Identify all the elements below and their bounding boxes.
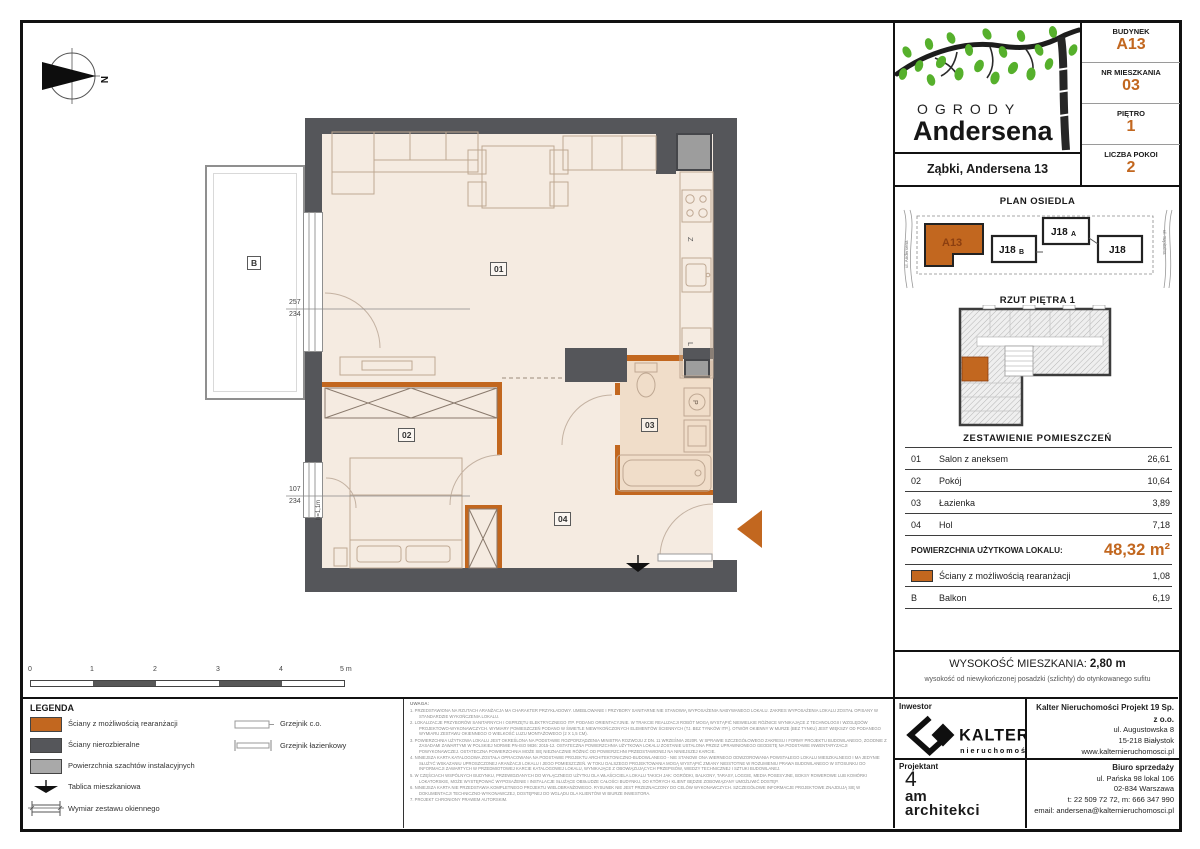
balcony-name: Balkon: [939, 593, 1120, 603]
site-block-a13-label: A13: [942, 237, 962, 249]
sales-address2: 02-834 Warszawa: [1030, 784, 1174, 795]
orange-wall-closet-right: [497, 505, 502, 568]
site-block-j18b-suffix: B: [1019, 249, 1024, 256]
table-row: 02 Pokój 10,64: [905, 470, 1172, 492]
scale-4: 4: [279, 666, 283, 673]
scale-bar-track: [30, 680, 345, 687]
investor-company: Kalter Nieruchomości Projekt 19 Sp. z o.…: [1030, 702, 1174, 725]
height-section-topline: [893, 650, 1182, 652]
wall-row-area: 1,08: [1120, 571, 1172, 581]
height-line: WYSOKOŚĆ MIESZKANIA: 2,80 m: [893, 658, 1182, 670]
orange-wall-bath-top: [627, 355, 683, 361]
apartment-value: 03: [1082, 77, 1180, 95]
kalter-diamond-icon: [932, 724, 955, 747]
rooms-table: 01 Salon z aneksem 26,61 02 Pokój 10,64 …: [905, 447, 1172, 609]
rooms-value: 2: [1082, 159, 1180, 177]
legend-item-label: Wymiar zestawu okiennego: [68, 804, 160, 813]
panel-divider: [893, 22, 895, 828]
orange-wall-closet-left: [465, 505, 469, 568]
legend-box: LEGENDA Ściany z możliwością rearanżacji…: [20, 697, 404, 828]
investor-row-divider: [893, 758, 1182, 760]
legend-item-label: Tablica mieszkaniowa: [68, 782, 141, 791]
total-area-row: POWIERZCHNIA UŻYTKOWA LOKALU: 48,32 m²: [905, 536, 1172, 565]
balcony: [205, 165, 305, 400]
scale-2: 2: [153, 666, 157, 673]
street-left-label: ul. Andersena: [904, 240, 909, 268]
dim-win1-width: 257: [289, 299, 301, 306]
radiator-co-icon: [233, 719, 275, 731]
info-row-apartment: NR MIESZKANIA 03: [1082, 63, 1180, 104]
notes-title: UWAGA:: [410, 701, 888, 706]
total-area-label: POWIERZCHNIA UŻYTKOWA LOKALU:: [905, 546, 1104, 555]
floor-thumb-unit-highlight: [962, 357, 988, 381]
info-row-floor: PIĘTRO 1: [1082, 104, 1180, 145]
site-block-j18a-suffix: A: [1071, 231, 1076, 238]
investor-col-divider: [1025, 699, 1027, 828]
address-bar-underline: [893, 185, 1182, 187]
floor-label: PIĘTRO: [1082, 109, 1180, 118]
orange-wall-bath-left-b: [615, 445, 620, 492]
wall-left-a: [305, 118, 322, 212]
balcony-no: B: [905, 593, 939, 603]
room-no: 01: [905, 454, 939, 464]
room-name: Łazienka: [939, 498, 1120, 508]
window-living: [303, 212, 323, 352]
kalter-logo: KALTER nieruchomości: [901, 712, 1025, 758]
site-plan-map: ul. Andersena ul. Szpitalna A13 J18 B J1…: [895, 208, 1180, 290]
tablica-legend-icon: [32, 780, 60, 794]
investor-label: Inwestor: [899, 702, 932, 711]
table-row: 01 Salon z aneksem 26,61: [905, 448, 1172, 470]
scale-3: 3: [216, 666, 220, 673]
orange-wall-closet-top: [465, 505, 502, 509]
dim-sill-height: h=1,1m: [316, 500, 322, 520]
floor-value: 1: [1082, 118, 1180, 136]
sales-phones: t: 22 509 72 72, m: 666 347 990: [1030, 795, 1174, 806]
info-table-divider: [1080, 22, 1082, 185]
wall-row-name: Ściany z możliwością rearanżacji: [939, 571, 1120, 581]
table-row: 04 Hol 7,18: [905, 514, 1172, 536]
room-no: 02: [905, 476, 939, 486]
room-no: 04: [905, 520, 939, 530]
wall-left-c: [305, 518, 322, 578]
legend-item-label: Grzejnik łazienkowy: [280, 741, 346, 750]
investor-www: www.kalternieruchomosci.pl: [1030, 747, 1174, 758]
orange-wall-bedroom-right: [497, 382, 502, 455]
notes-block: UWAGA: 1. PRZEDSTAWIONA NA RZUTACH ARANŻ…: [410, 701, 888, 804]
kalter-brand-text: KALTER: [959, 727, 1025, 745]
orange-wall-bath-left-a: [615, 383, 620, 395]
note-item: 7. PROJEKT CHRONIONY PRAWEM AUTORSKIM.: [410, 797, 888, 803]
investor-address: Kalter Nieruchomości Projekt 19 Sp. z o.…: [1030, 702, 1174, 758]
balcony-row: B Balkon 6,19: [905, 587, 1172, 609]
apartment-card-page: { "header": { "rows": [ {"label":"BUDYNE…: [0, 0, 1200, 849]
room-name: Hol: [939, 520, 1120, 530]
note-item: 5. W CZĘŚCIACH WSPÓLNYCH BUDYNKU, PRZEWI…: [410, 773, 888, 784]
legend-item-label: Ściany nierozbieralne: [68, 740, 140, 749]
orange-wall-swatch: [911, 570, 933, 582]
room-area: 3,89: [1120, 498, 1172, 508]
brand-logo: OGRODY Andersena: [895, 22, 1080, 152]
site-block-j18a-label: J18: [1051, 227, 1068, 238]
orange-wall-bedroom-top: [322, 382, 502, 387]
wall-shaft2-top: [683, 348, 713, 359]
radiator-bath-icon: [233, 740, 275, 752]
room-label-04: 04: [554, 512, 571, 526]
kalter-brand-sub: nieruchomości: [960, 747, 1025, 755]
investor-address1: ul. Augustowska 8: [1030, 725, 1174, 736]
bathroom-floor: [620, 361, 713, 490]
balcony-inner-line: [213, 173, 297, 392]
room-label-01: 01: [490, 262, 507, 276]
installation-shaft-2: [684, 359, 710, 378]
table-row: 03 Łazienka 3,89: [905, 492, 1172, 514]
scale-1: 1: [90, 666, 94, 673]
height-value: 2,80 m: [1090, 658, 1126, 670]
balcony-area: 6,19: [1120, 593, 1172, 603]
room-area: 26,61: [1120, 454, 1172, 464]
room-no: 03: [905, 498, 939, 508]
wall-bath-corner: [565, 348, 627, 382]
note-item: 2. LOKALIZACJE PRZYBORÓW SANITARNYCH I O…: [410, 720, 888, 737]
note-item: 1. PRZEDSTAWIONA NA RZUTACH ARANŻACJA MA…: [410, 708, 888, 719]
site-block-j18-label: J18: [1109, 245, 1126, 256]
bottom-strip-line: [22, 697, 1178, 699]
note-item: 4. NINIEJSZA KARTA KATALOGOWA ZOSTAŁA OP…: [410, 755, 888, 772]
window-dim-legend-icon: [28, 800, 64, 818]
site-plan-title: PLAN OSIEDLA: [893, 196, 1182, 207]
info-row-rooms: LICZBA POKOI 2: [1082, 145, 1180, 185]
room-area: 7,18: [1120, 520, 1172, 530]
logo-line1: OGRODY: [917, 101, 1021, 117]
designer-logo-4: 4: [905, 770, 980, 790]
note-item: 3. POWIERZCHNIA UŻYTKOWA LOKALU JEST OKR…: [410, 738, 888, 755]
investor-address2: 15-218 Białystok: [1030, 736, 1174, 747]
building-label: BUDYNEK: [1082, 27, 1180, 36]
dim-win2-width: 107: [289, 486, 301, 493]
info-row-building: BUDYNEK A13: [1082, 22, 1180, 63]
note-item: 6. NINIEJSZA KARTA NIE PRZEDSTAWIA KOMPL…: [410, 785, 888, 796]
designer-logo-architekci: architekci: [905, 804, 980, 818]
rooms-label: LICZBA POKOI: [1082, 150, 1180, 159]
legend-item-label: Powierzchnia szachtów instalacyjnych: [68, 761, 195, 770]
wall-left-b: [305, 352, 322, 462]
apartment-label: NR MIESZKANIA: [1082, 68, 1180, 77]
floor-thumb-map: [945, 305, 1135, 430]
sales-email: email: andersena@kalternieruchomosci.pl: [1030, 806, 1174, 817]
height-label: WYSOKOŚĆ MIESZKANIA:: [949, 658, 1087, 670]
room-area: 10,64: [1120, 476, 1172, 486]
balcony-label: B: [247, 256, 261, 270]
wall-shaft-niche: [656, 118, 676, 174]
room-name: Salon z aneksem: [939, 454, 1120, 464]
legend-item-label: Ściany z możliwością rearanżacji: [68, 719, 178, 728]
unit-info-table: BUDYNEK A13 NR MIESZKANIA 03 PIĘTRO 1 LI…: [1082, 22, 1180, 185]
dim-win2-height: 234: [289, 498, 301, 505]
logo-line2: Andersena: [913, 116, 1054, 146]
room-label-02: 02: [398, 428, 415, 442]
rooms-table-title: ZESTAWIENIE POMIESZCZEŃ: [893, 433, 1182, 444]
height-note: wysokość od niewykończonej posadzki (szl…: [893, 676, 1182, 683]
designer-logo: 4 am architekci: [905, 770, 980, 818]
legend-title: LEGENDA: [30, 703, 74, 713]
legend-item-label: Grzejnik c.o.: [280, 719, 322, 728]
sales-label: Biuro sprzedaży: [1030, 762, 1174, 774]
room-name: Pokój: [939, 476, 1120, 486]
entrance-opening: [713, 503, 737, 560]
legend-swatch-orange: [30, 717, 62, 732]
legend-swatch-dark: [30, 738, 62, 753]
room-label-03: 03: [641, 418, 658, 432]
wall-legend-row: Ściany z możliwością rearanżacji 1,08: [905, 565, 1172, 587]
building-value: A13: [1082, 36, 1180, 54]
tree-branch-icon: OGRODY Andersena: [895, 22, 1080, 152]
wall-bottom: [305, 568, 737, 592]
dim-win1-height: 234: [289, 311, 301, 318]
orange-wall-bath-bottom: [615, 490, 713, 495]
street-right-label: ul. Szpitalna: [1162, 230, 1167, 255]
sales-address1: ul. Pańska 98 lokal 106: [1030, 774, 1174, 785]
scale-5: 5 m: [340, 666, 352, 673]
sales-office: Biuro sprzedaży ul. Pańska 98 lokal 106 …: [1030, 762, 1174, 817]
site-block-j18b-label: J18: [999, 245, 1016, 256]
installation-shaft-1: [676, 133, 712, 171]
legend-swatch-gray: [30, 759, 62, 774]
apartment-floor: [322, 134, 713, 568]
scale-0: 0: [28, 666, 32, 673]
total-area-value: 48,32 m²: [1104, 541, 1172, 560]
address-bar: Ząbki, Andersena 13: [895, 152, 1080, 187]
